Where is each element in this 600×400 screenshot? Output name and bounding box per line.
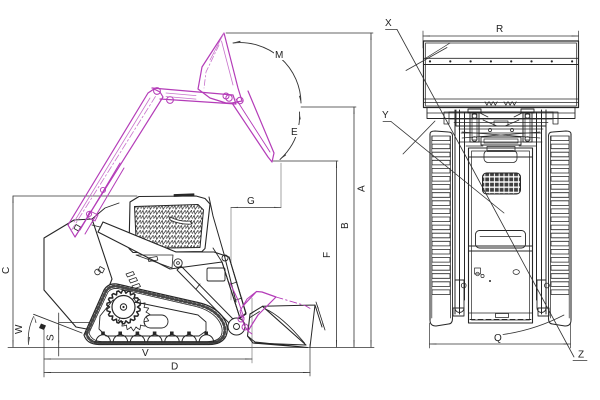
svg-text:D: D	[171, 362, 178, 373]
svg-text:Y: Y	[382, 110, 389, 121]
svg-text:F: F	[322, 252, 333, 258]
svg-text:X: X	[385, 18, 392, 29]
svg-text:Z: Z	[578, 350, 584, 361]
svg-text:G: G	[247, 196, 255, 207]
svg-text:R: R	[496, 24, 503, 35]
svg-text:E: E	[291, 127, 298, 138]
svg-text:M: M	[275, 50, 283, 61]
svg-text:V: V	[142, 348, 149, 359]
svg-text:C: C	[1, 267, 12, 274]
svg-text:B: B	[340, 222, 351, 229]
svg-text:Q: Q	[494, 333, 502, 344]
svg-text:S: S	[46, 334, 57, 341]
svg-text:A: A	[357, 185, 368, 192]
svg-text:W: W	[14, 324, 25, 334]
